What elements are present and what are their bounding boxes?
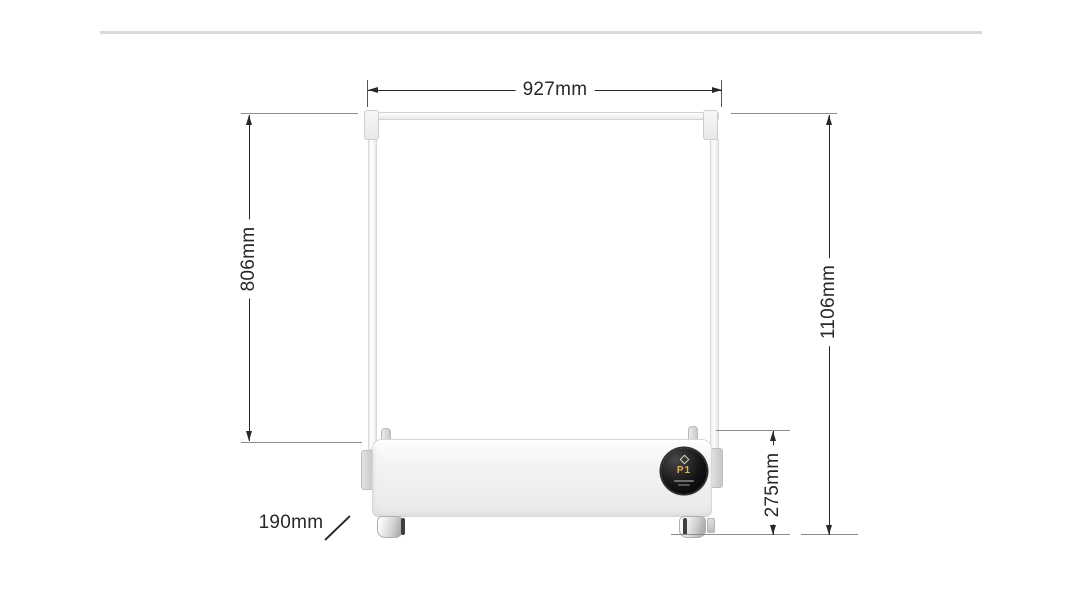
width-extension-left	[367, 80, 368, 107]
left-foot	[377, 516, 403, 538]
right-lower-tab	[707, 518, 715, 533]
display-subtext-bar	[674, 480, 694, 482]
depth-dimension-label: 190mm	[252, 512, 331, 534]
width-arrow-right	[712, 87, 722, 93]
base-height-arrow-top	[770, 431, 776, 441]
pole-height-arrow-top	[246, 115, 252, 125]
display-subtext-bar	[678, 484, 690, 486]
total-height-arrow-bottom	[826, 525, 832, 535]
product-dimension-diagram: P1 927mm 806mm 1106mm 275mm 190mm	[0, 0, 1080, 606]
width-arrow-left	[368, 87, 378, 93]
total-height-extension-top	[731, 113, 837, 114]
width-extension-right	[721, 80, 722, 107]
pole-height-extension-bottom	[241, 442, 362, 443]
pole-height-dimension-label: 806mm	[238, 220, 260, 299]
base-unit	[372, 439, 712, 517]
left-pole	[368, 138, 377, 450]
pole-height-extension-top	[241, 113, 358, 114]
right-foot-notch	[683, 518, 687, 535]
display-mode-text: P1	[677, 466, 691, 476]
total-height-arrow-top	[826, 115, 832, 125]
display-status-icon	[679, 455, 689, 465]
base-height-extension-top	[716, 430, 790, 431]
right-pole	[710, 138, 719, 450]
rail-corner-right	[703, 110, 718, 140]
rail-corner-left	[364, 110, 379, 140]
base-height-arrow-bottom	[770, 525, 776, 535]
control-display: P1	[661, 448, 707, 494]
base-height-dimension-label: 275mm	[762, 446, 784, 525]
width-dimension-label: 927mm	[516, 79, 595, 101]
total-height-dimension-label: 1106mm	[818, 258, 840, 346]
left-foot-notch	[401, 518, 405, 535]
top-divider-line	[100, 31, 982, 34]
top-rail	[369, 112, 719, 120]
pole-height-arrow-bottom	[246, 431, 252, 441]
